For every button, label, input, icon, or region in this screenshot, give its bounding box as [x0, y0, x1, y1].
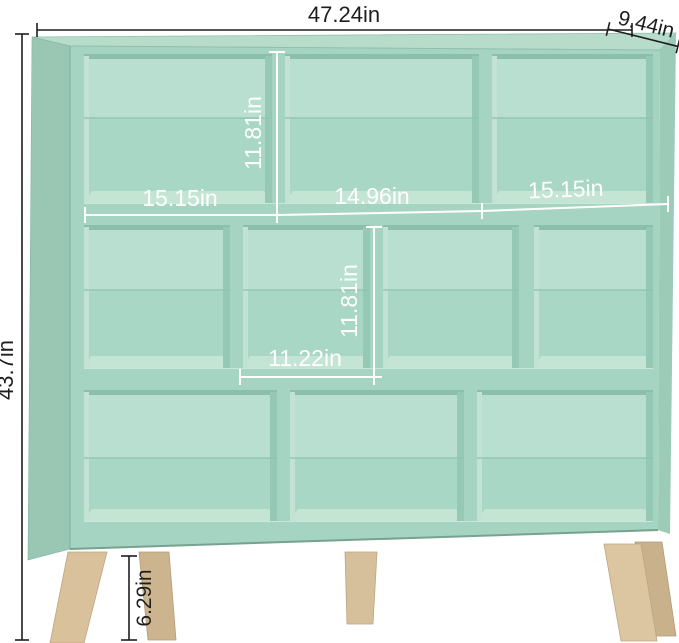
cube-ceiling-shadow — [285, 54, 479, 59]
bookshelf-diagram-canvas: 47.24in 9.44in 43.7in 6.29in — [0, 0, 679, 643]
right-side-sliver — [658, 33, 676, 534]
cube-row-3 — [84, 390, 653, 521]
cube-r3c2 — [290, 390, 464, 521]
leg-height-label: 6.29in — [133, 569, 156, 626]
product-dimension-diagram: 47.24in 9.44in 43.7in 6.29in — [0, 0, 679, 643]
cube-right-wall — [646, 227, 653, 368]
cube-right-wall — [646, 392, 653, 521]
cube-back-upper — [383, 225, 519, 290]
cube-row-2 — [84, 225, 653, 368]
cube-back-upper — [290, 390, 464, 458]
cube-ceiling-shadow — [534, 225, 653, 230]
top-row-width-center-label: 14.96in — [334, 183, 409, 209]
cube-left-wall — [84, 227, 89, 368]
leg-center — [345, 552, 377, 624]
cube-r3c1 — [84, 390, 277, 521]
top-cube-height-label: 11.81in — [240, 96, 266, 170]
left-side-panel — [28, 37, 70, 560]
cube-r2c4 — [534, 225, 653, 368]
cube-left-wall — [492, 56, 497, 203]
cube-right-wall — [363, 227, 370, 368]
leg-front-left — [50, 552, 107, 643]
cube-ceiling-shadow — [84, 54, 272, 59]
cube-left-wall — [477, 392, 482, 521]
cube-ceiling-shadow — [383, 225, 519, 230]
cube-right-wall — [457, 392, 464, 521]
cube-ceiling-shadow — [84, 390, 277, 395]
cube-ceiling-shadow — [84, 225, 230, 230]
overall-height-label: 43.7in — [0, 340, 18, 400]
cube-right-wall — [646, 56, 653, 203]
cube-left-wall — [534, 227, 539, 368]
cube-r1c2 — [285, 54, 479, 203]
cube-r2c1 — [84, 225, 230, 368]
middle-cube-width-label: 11.22in — [268, 345, 342, 371]
cube-back-upper — [84, 225, 230, 290]
cube-ceiling-shadow — [290, 390, 464, 395]
cube-floor — [477, 509, 653, 521]
cube-right-wall — [472, 56, 479, 203]
cube-left-wall — [84, 392, 89, 521]
middle-cube-height-label: 11.81in — [336, 264, 362, 338]
cube-left-wall — [243, 227, 248, 368]
cube-back-upper — [492, 54, 653, 118]
cube-floor — [290, 509, 464, 521]
cube-left-wall — [84, 56, 89, 203]
overall-width-label: 47.24in — [308, 2, 380, 27]
cube-floor — [383, 356, 519, 368]
cube-back-upper — [285, 54, 479, 118]
cube-ceiling-shadow — [243, 225, 370, 230]
back-legs — [139, 542, 676, 640]
cube-r3c3 — [477, 390, 653, 521]
dim-overall-width: 47.24in — [37, 2, 632, 37]
top-row-width-right-label: 15.15in — [528, 175, 604, 204]
cube-floor — [534, 356, 653, 368]
cube-left-wall — [290, 392, 295, 521]
cube-left-wall — [383, 227, 388, 368]
cube-floor — [84, 356, 230, 368]
dim-overall-height: 43.7in — [0, 34, 29, 640]
top-row-width-left-label: 15.15in — [142, 185, 217, 211]
cube-floor — [84, 509, 277, 521]
cube-right-wall — [265, 56, 272, 203]
cube-back-upper — [84, 390, 277, 458]
cube-back-upper — [477, 390, 653, 458]
cube-left-wall — [285, 56, 290, 203]
cube-back-upper — [534, 225, 653, 290]
cube-right-wall — [223, 227, 230, 368]
cube-right-wall — [512, 227, 519, 368]
cube-r2c3 — [383, 225, 519, 368]
cube-right-wall — [270, 392, 277, 521]
cube-ceiling-shadow — [492, 54, 653, 59]
cube-ceiling-shadow — [477, 390, 653, 395]
